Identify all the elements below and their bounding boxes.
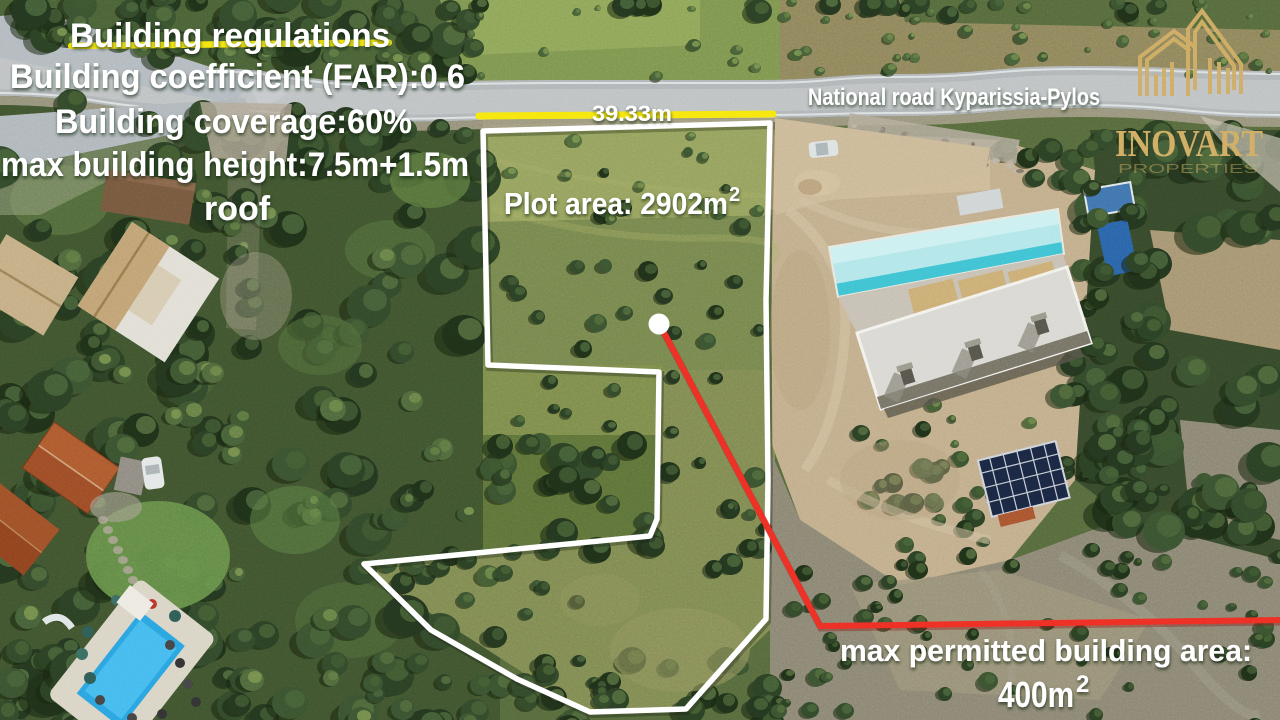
- svg-text:National road Kyparissia-Pylos: National road Kyparissia-Pylos: [808, 84, 1100, 111]
- svg-text:Plot area: 2902m: Plot area: 2902m: [504, 186, 728, 221]
- svg-text:max building height:7.5m+1.5m: max building height:7.5m+1.5m: [1, 146, 469, 184]
- svg-text:roof: roof: [204, 190, 271, 228]
- svg-text:max permitted building area:: max permitted building area:: [840, 633, 1252, 668]
- svg-text:Building coefficient (FAR):0.6: Building coefficient (FAR):0.6: [10, 58, 465, 96]
- svg-text:PROPERTIES: PROPERTIES: [1118, 162, 1258, 176]
- svg-text:2: 2: [1076, 671, 1089, 698]
- svg-text:2: 2: [729, 184, 740, 206]
- svg-text:39.33m: 39.33m: [592, 101, 672, 126]
- svg-text:Building coverage:60%: Building coverage:60%: [55, 103, 412, 141]
- svg-text:INOVART: INOVART: [1115, 123, 1263, 165]
- svg-text:400m: 400m: [998, 674, 1074, 715]
- svg-text:Building regulations: Building regulations: [70, 17, 390, 55]
